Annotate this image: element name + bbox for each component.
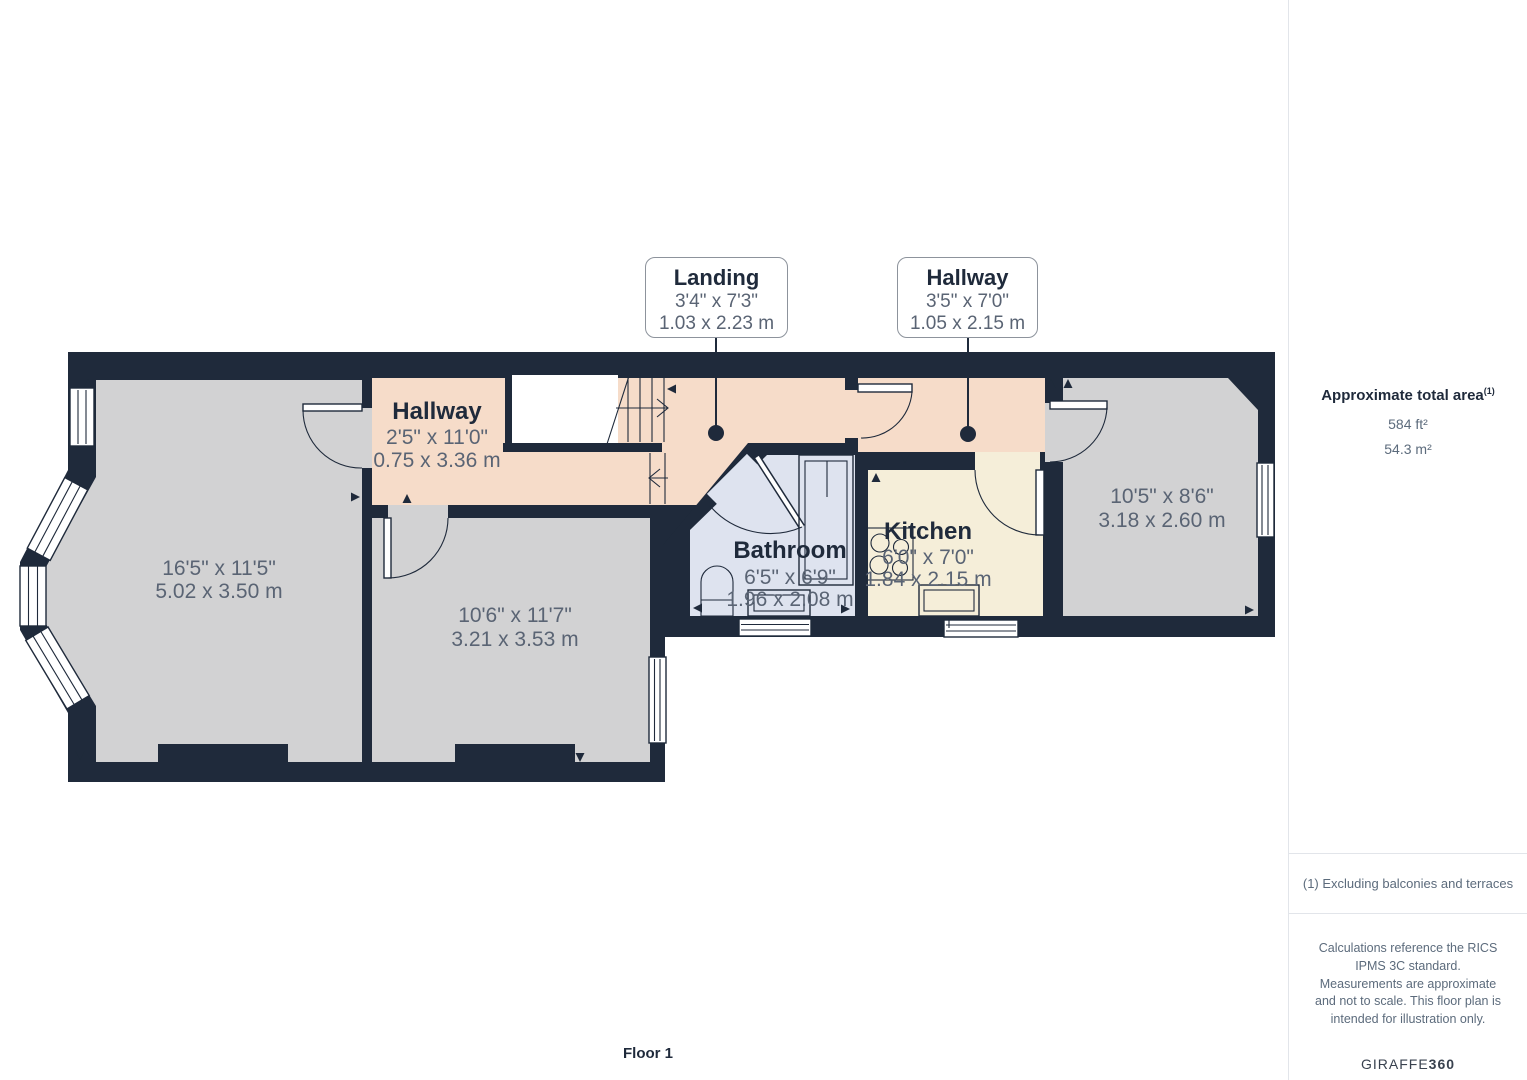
bay-window-middle bbox=[20, 566, 46, 626]
bathroom-dims-ft: 6'5" x 6'9" bbox=[744, 566, 836, 589]
room-middle-dims-ft: 10'6" x 11'7" bbox=[458, 604, 572, 627]
hallway-anchor-dot bbox=[960, 426, 976, 442]
window-middle-room bbox=[649, 657, 666, 743]
room-left-dims-m: 5.02 x 3.50 m bbox=[155, 580, 282, 603]
hallway-name: Hallway bbox=[392, 398, 482, 425]
total-area-footnote-marker: (1) bbox=[1484, 386, 1495, 396]
hallway-dims-m: 0.75 x 3.36 m bbox=[373, 449, 500, 472]
legal-section: Calculations reference the RICS IPMS 3C … bbox=[1289, 914, 1527, 1080]
room-middle-dims-m: 3.21 x 3.53 m bbox=[451, 628, 578, 651]
hallway-dims-ft: 2'5" x 11'0" bbox=[386, 426, 488, 449]
hallway-callout: Hallway 3'5" x 7'0" 1.05 x 2.15 m bbox=[897, 257, 1038, 338]
floorplan-page: 16'5" x 11'5" 5.02 x 3.50 m 10'6" x 11'7… bbox=[0, 0, 1527, 1080]
brand-prefix: GIRAFFE bbox=[1361, 1056, 1429, 1072]
hallway-callout-dims-m: 1.05 x 2.15 m bbox=[898, 313, 1037, 335]
brand-suffix: 360 bbox=[1429, 1056, 1455, 1072]
kitchen-dims-m: 1.84 x 2.15 m bbox=[864, 568, 991, 591]
floor-label: Floor 1 bbox=[560, 1045, 736, 1062]
total-area-section: Approximate total area(1) 584 ft² 54.3 m… bbox=[1289, 0, 1527, 854]
hallway-callout-title: Hallway bbox=[898, 265, 1037, 291]
landing-callout-dims-ft: 3'4" x 7'3" bbox=[646, 291, 787, 313]
kitchen-name: Kitchen bbox=[884, 518, 972, 545]
landing-callout: Landing 3'4" x 7'3" 1.03 x 2.23 m bbox=[645, 257, 788, 338]
bathroom-name: Bathroom bbox=[733, 537, 846, 564]
window-kitchen bbox=[944, 620, 1018, 637]
window-right-room bbox=[1257, 463, 1274, 537]
giraffe360-logo: GIRAFFE360 bbox=[1289, 1056, 1527, 1072]
hallway-callout-dims-ft: 3'5" x 7'0" bbox=[898, 291, 1037, 313]
window-left-wall bbox=[70, 388, 94, 446]
total-area-metric: 54.3 m² bbox=[1289, 441, 1527, 457]
landing-callout-title: Landing bbox=[646, 265, 787, 291]
disclaimer-text: Calculations reference the RICS IPMS 3C … bbox=[1315, 940, 1501, 1029]
bathroom-dims-m: 1.96 x 2.08 m bbox=[726, 588, 853, 611]
window-bathroom bbox=[739, 619, 811, 636]
kitchen-dims-ft: 6'0" x 7'0" bbox=[882, 546, 974, 569]
room-right-dims-m: 3.18 x 2.60 m bbox=[1098, 509, 1225, 532]
landing-anchor-dot bbox=[708, 425, 724, 441]
room-right-dims-ft: 10'5" x 8'6" bbox=[1110, 485, 1214, 508]
area-footnote: (1) Excluding balconies and terraces bbox=[1289, 854, 1527, 914]
landing-callout-dims-m: 1.03 x 2.23 m bbox=[646, 313, 787, 335]
info-sidebar: Approximate total area(1) 584 ft² 54.3 m… bbox=[1288, 0, 1527, 1080]
total-area-title-text: Approximate total area bbox=[1321, 387, 1484, 404]
room-left-dims-ft: 16'5" x 11'5" bbox=[162, 557, 276, 580]
total-area-imperial: 584 ft² bbox=[1289, 416, 1527, 432]
total-area-title: Approximate total area(1) bbox=[1289, 386, 1527, 404]
